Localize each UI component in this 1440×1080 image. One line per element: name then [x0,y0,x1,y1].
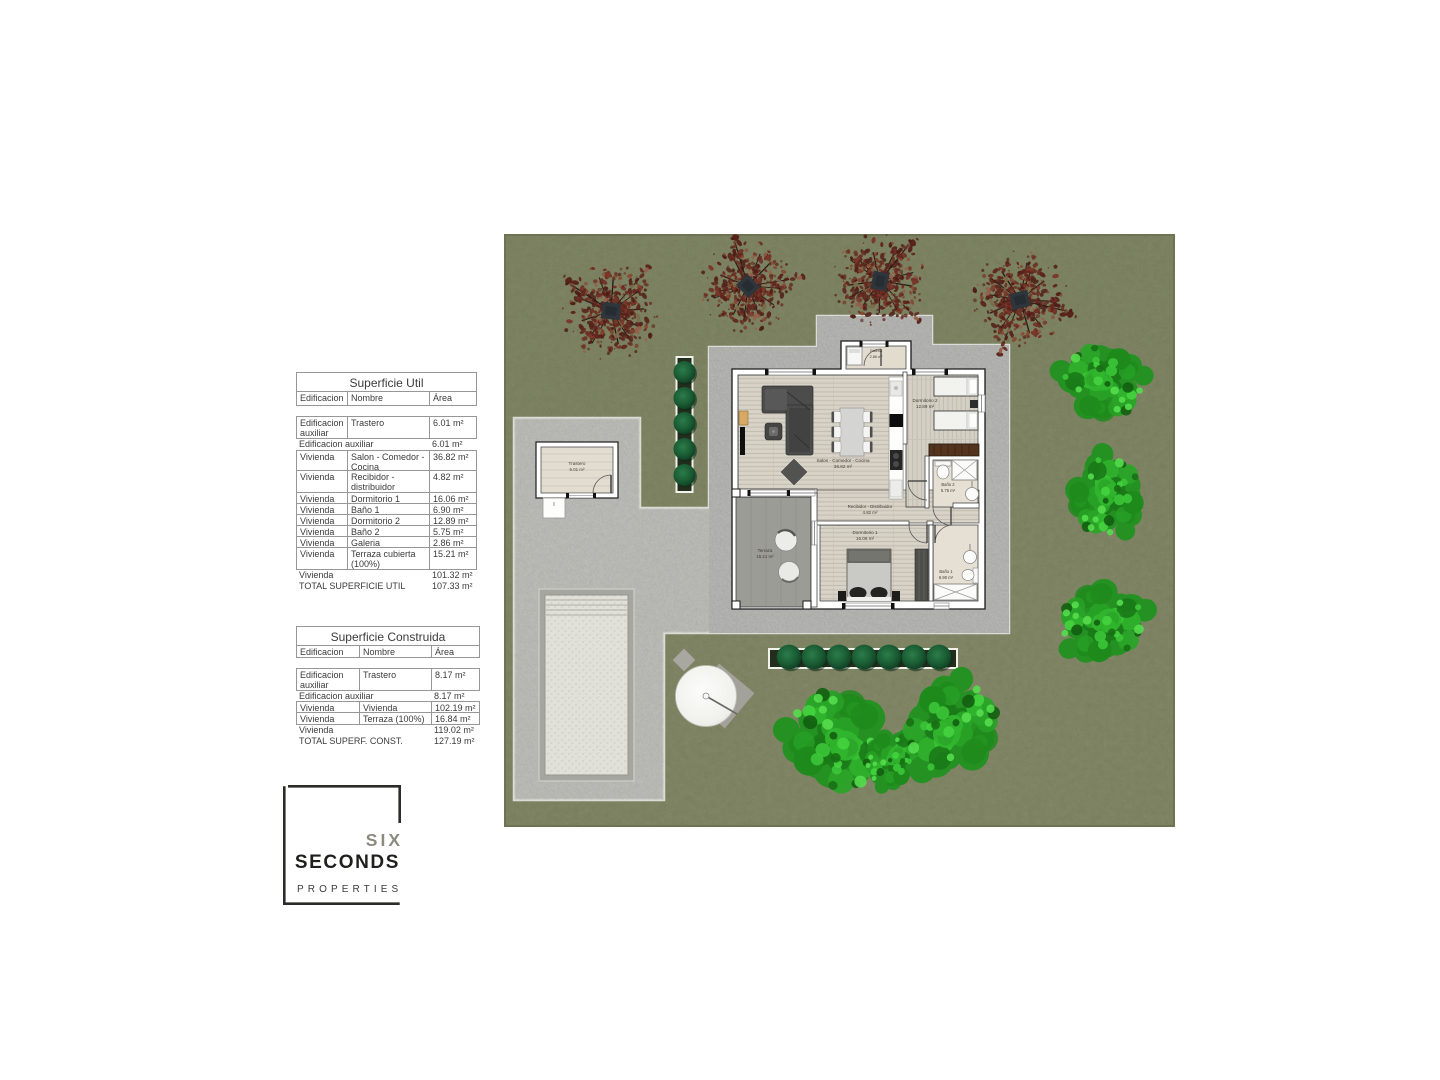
svg-text:5.75 m²: 5.75 m² [941,488,956,493]
svg-text:6.90 m²: 6.90 m² [939,575,954,580]
svg-text:SECONDS: SECONDS [295,852,400,873]
svg-text:4.82 m²: 4.82 m² [863,510,878,515]
svg-text:Terraza: Terraza [758,548,773,553]
svg-text:16.06 m²: 16.06 m² [856,536,875,541]
svg-text:Baño 2: Baño 2 [941,482,955,487]
svg-text:Trastero: Trastero [569,461,586,466]
svg-text:15.21 m²: 15.21 m² [756,554,774,559]
svg-text:Dormitorio 1: Dormitorio 1 [852,530,877,535]
svg-text:6.01 m²: 6.01 m² [570,467,585,472]
svg-text:Galeria: Galeria [870,349,883,353]
svg-text:12.89 m²: 12.89 m² [916,404,935,409]
svg-text:Baño 1: Baño 1 [939,569,953,574]
svg-text:36.82 m²: 36.82 m² [834,464,853,469]
svg-text:2.86 m²: 2.86 m² [870,355,884,359]
svg-text:Recibidor - Distribuidor: Recibidor - Distribuidor [848,504,893,509]
svg-text:PROPERTIES: PROPERTIES [297,884,402,895]
svg-text:Salon - Comedor - Cocina: Salon - Comedor - Cocina [816,458,870,463]
svg-text:Dormitorio 2: Dormitorio 2 [912,398,937,403]
svg-text:SIX: SIX [366,830,403,850]
